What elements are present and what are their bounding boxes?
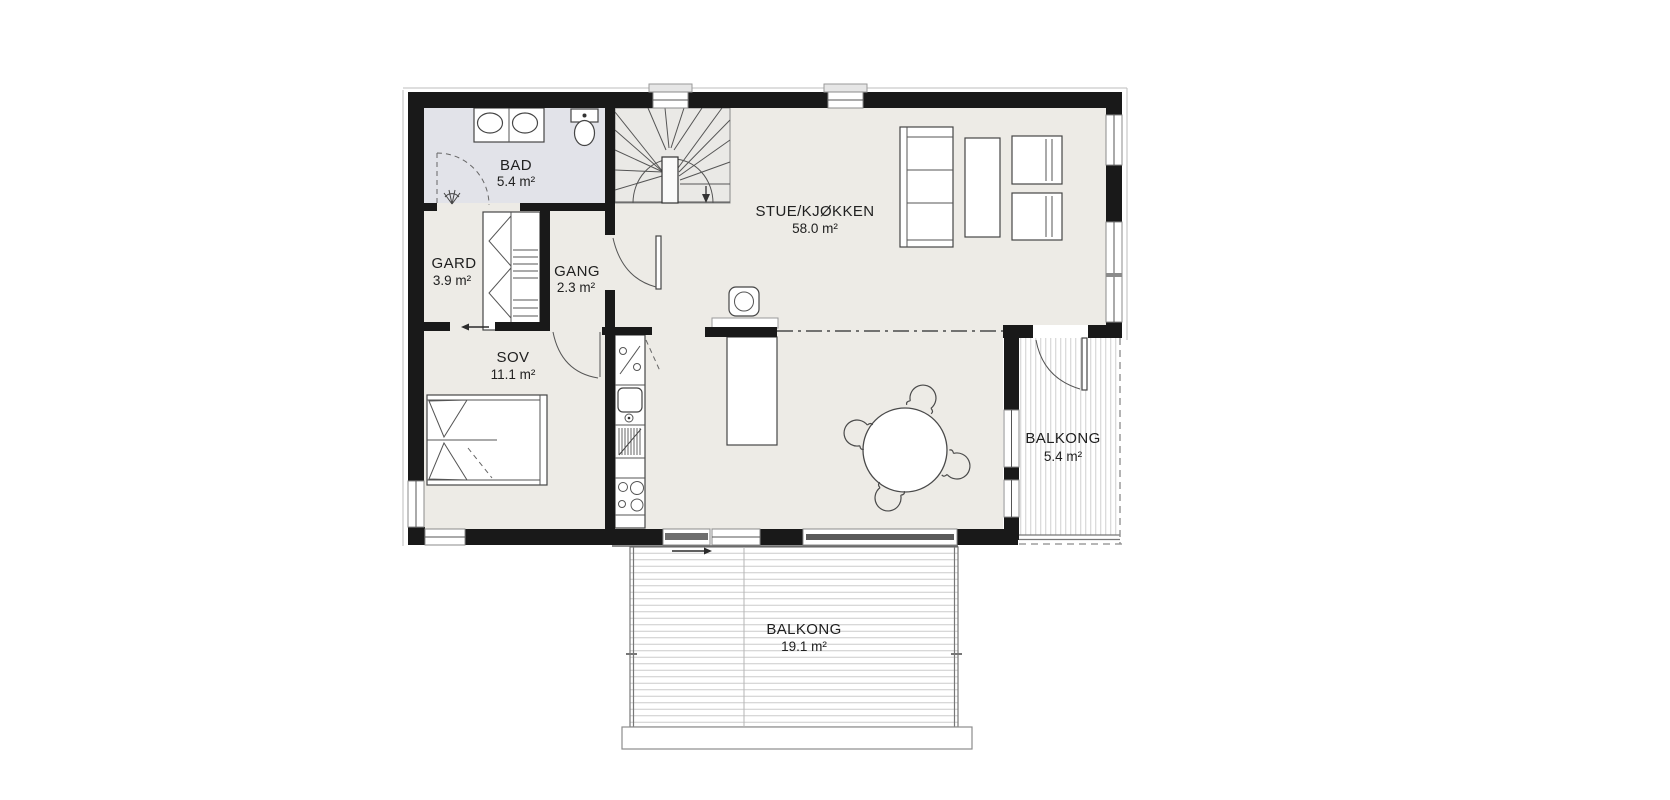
armchair-icon <box>1012 193 1062 240</box>
room-area-sov: 11.1 m² <box>491 367 536 382</box>
room-label-stue: STUE/KJØKKEN <box>756 203 875 220</box>
room-area-stue: 58.0 m² <box>792 221 838 236</box>
room-label-bad: BAD <box>500 157 532 174</box>
wardrobe-icon <box>483 212 540 330</box>
window-icon <box>425 529 465 545</box>
window-icon <box>1106 222 1122 322</box>
window-icon <box>712 529 760 545</box>
window-icon <box>1106 115 1122 165</box>
floor-plan-drawing: BAD 5.4 m² GARD 3.9 m² GANG 2.3 m² SOV 1… <box>0 0 1670 800</box>
bed-icon <box>427 395 547 485</box>
room-label-balkong-front: BALKONG <box>766 621 841 638</box>
dining-table-icon <box>863 408 947 492</box>
floor-plan: BAD 5.4 m² GARD 3.9 m² GANG 2.3 m² SOV 1… <box>0 0 1670 800</box>
window-icon <box>653 92 688 108</box>
window-icon <box>1004 410 1019 467</box>
room-area-balkong-front: 19.1 m² <box>781 639 827 654</box>
room-area-balkong-side: 5.4 m² <box>1044 449 1083 464</box>
coffee-table-icon <box>965 138 1000 237</box>
bar-stool-icon <box>729 287 759 316</box>
room-label-gard: GARD <box>432 255 477 272</box>
double-sink-icon <box>474 108 544 142</box>
room-label-sov: SOV <box>497 349 530 366</box>
window-icon <box>408 481 424 527</box>
room-label-balkong-side: BALKONG <box>1025 430 1100 447</box>
room-area-gard: 3.9 m² <box>433 273 472 288</box>
sofa-icon <box>900 127 953 247</box>
window-icon <box>803 529 957 545</box>
room-area-bad: 5.4 m² <box>497 174 536 189</box>
room-area-gang: 2.3 m² <box>557 280 596 295</box>
armchair-icon <box>1012 136 1062 184</box>
sliding-door-icon <box>663 529 710 545</box>
window-icon <box>828 92 863 108</box>
window-icon <box>1004 480 1019 517</box>
room-label-gang: GANG <box>554 263 600 280</box>
